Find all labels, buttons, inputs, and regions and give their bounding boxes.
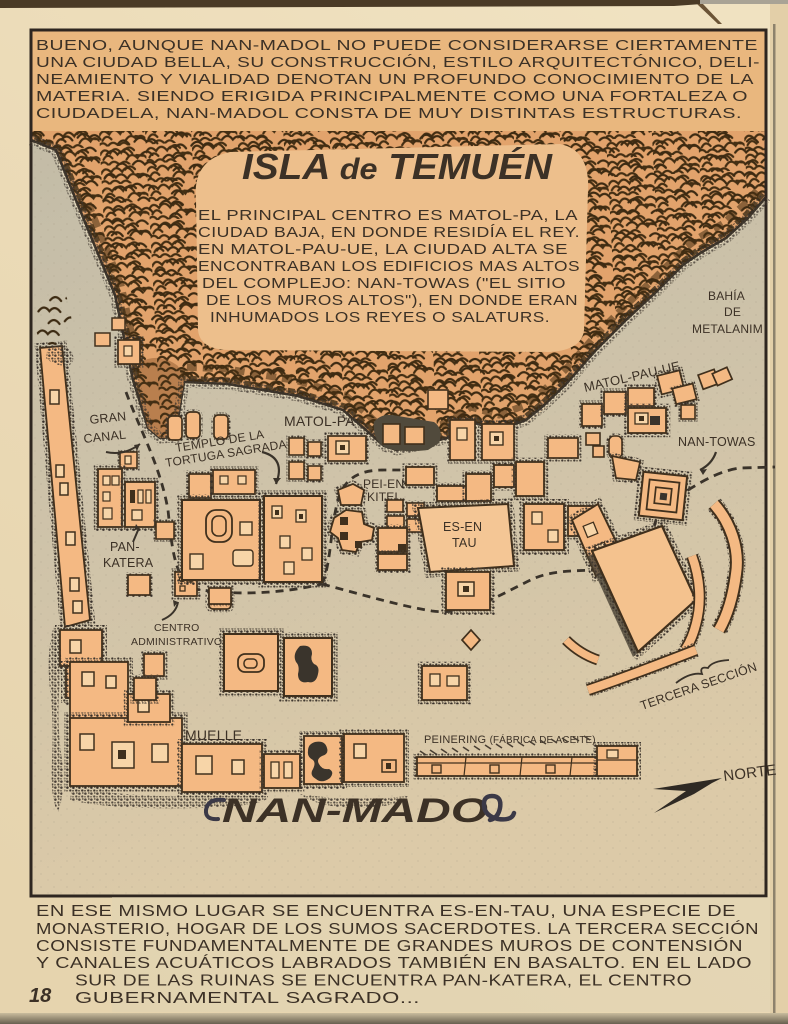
svg-text:KATERA: KATERA [103, 556, 154, 570]
svg-text:CENTRO: CENTRO [154, 622, 200, 634]
svg-text:NAN-TOWAS: NAN-TOWAS [678, 435, 756, 449]
svg-text:ADMINISTRATIVO: ADMINISTRATIVO [131, 636, 222, 648]
svg-text:SUR DE LAS RUINAS SE ENCUENTRA: SUR DE LAS RUINAS SE ENCUENTRA PAN-KATER… [75, 973, 692, 990]
svg-text:PEI-EN: PEI-EN [363, 477, 404, 491]
svg-text:BAHÍA: BAHÍA [708, 288, 745, 303]
svg-text:MATERIA. SIENDO ERIGIDA PRINCI: MATERIA. SIENDO ERIGIDA PRINCIPALMENTE C… [36, 88, 748, 105]
svg-text:CIUDADELA, NAN-MADOL CONSTA DE: CIUDADELA, NAN-MADOL CONSTA DE MUY DISTI… [36, 105, 742, 122]
svg-text:ENCONTRABAN LOS EDIFICIOS MAS: ENCONTRABAN LOS EDIFICIOS MAS ALTOS [198, 259, 580, 275]
svg-text:CIUDAD BAJA, EN DONDE RESIDÍA: CIUDAD BAJA, EN DONDE RESIDÍA EL REY. [198, 224, 580, 241]
svg-text:EN ESE MISMO LUGAR SE ENCUENTR: EN ESE MISMO LUGAR SE ENCUENTRA ES-EN-TA… [36, 903, 736, 920]
svg-text:MATOL-PA: MATOL-PA [284, 413, 355, 429]
svg-text:MUELLE: MUELLE [185, 727, 242, 743]
svg-text:EL PRINCIPAL CENTRO ES MATOL-P: EL PRINCIPAL CENTRO ES MATOL-PA, LA [198, 208, 578, 224]
svg-text:PAN-: PAN- [110, 540, 140, 554]
svg-text:Y CANALES ACUÁTICOS LABRADOS T: Y CANALES ACUÁTICOS LABRADOS TAMBIÉN EN … [36, 955, 752, 972]
svg-text:METALANIM: METALANIM [692, 322, 763, 336]
svg-text:GUBERNAMENTAL SAGRADO...: GUBERNAMENTAL SAGRADO... [75, 990, 420, 1007]
svg-text:ES-EN: ES-EN [443, 520, 482, 534]
svg-text:EN MATOL-PAU-UE, LA CIUDAD ALT: EN MATOL-PAU-UE, LA CIUDAD ALTA SE [198, 242, 568, 258]
svg-text:INHUMADOS LOS REYES O SALATURS: INHUMADOS LOS REYES O SALATURS. [210, 310, 550, 326]
svg-text:DE: DE [724, 305, 741, 319]
svg-text:CONSISTE FUNDAMENTALMENTE DE G: CONSISTE FUNDAMENTALMENTE DE GRANDES MUR… [36, 938, 743, 955]
svg-text:UNA CIUDAD BELLA, SU CONSTRUCC: UNA CIUDAD BELLA, SU CONSTRUCCIÓN, ESTIL… [36, 54, 760, 71]
svg-text:TAU: TAU [452, 536, 477, 550]
svg-text:18: 18 [29, 985, 52, 1007]
svg-text:DE LOS MUROS ALTOS"), EN DONDE: DE LOS MUROS ALTOS"), EN DONDE ERAN [206, 293, 578, 309]
svg-text:BUENO, AUNQUE NAN-MADOL NO PUE: BUENO, AUNQUE NAN-MADOL NO PUEDE CONSIDE… [36, 37, 758, 54]
svg-text:MONASTERIO, HOGAR DE LOS SUMOS: MONASTERIO, HOGAR DE LOS SUMOS SACERDOTE… [36, 921, 759, 938]
svg-text:ISLA de TEMUÉN: ISLA de TEMUÉN [242, 146, 553, 187]
svg-text:NEAMIENTO Y VIALIDAD DENOTAN U: NEAMIENTO Y VIALIDAD DENOTAN UN PROFUNDO… [36, 71, 755, 88]
svg-text:NAN-MADO: NAN-MADO [222, 792, 488, 830]
svg-text:DEL COMPLEJO: NAN-TOWAS ("EL S: DEL COMPLEJO: NAN-TOWAS ("EL SITIO [202, 276, 566, 292]
